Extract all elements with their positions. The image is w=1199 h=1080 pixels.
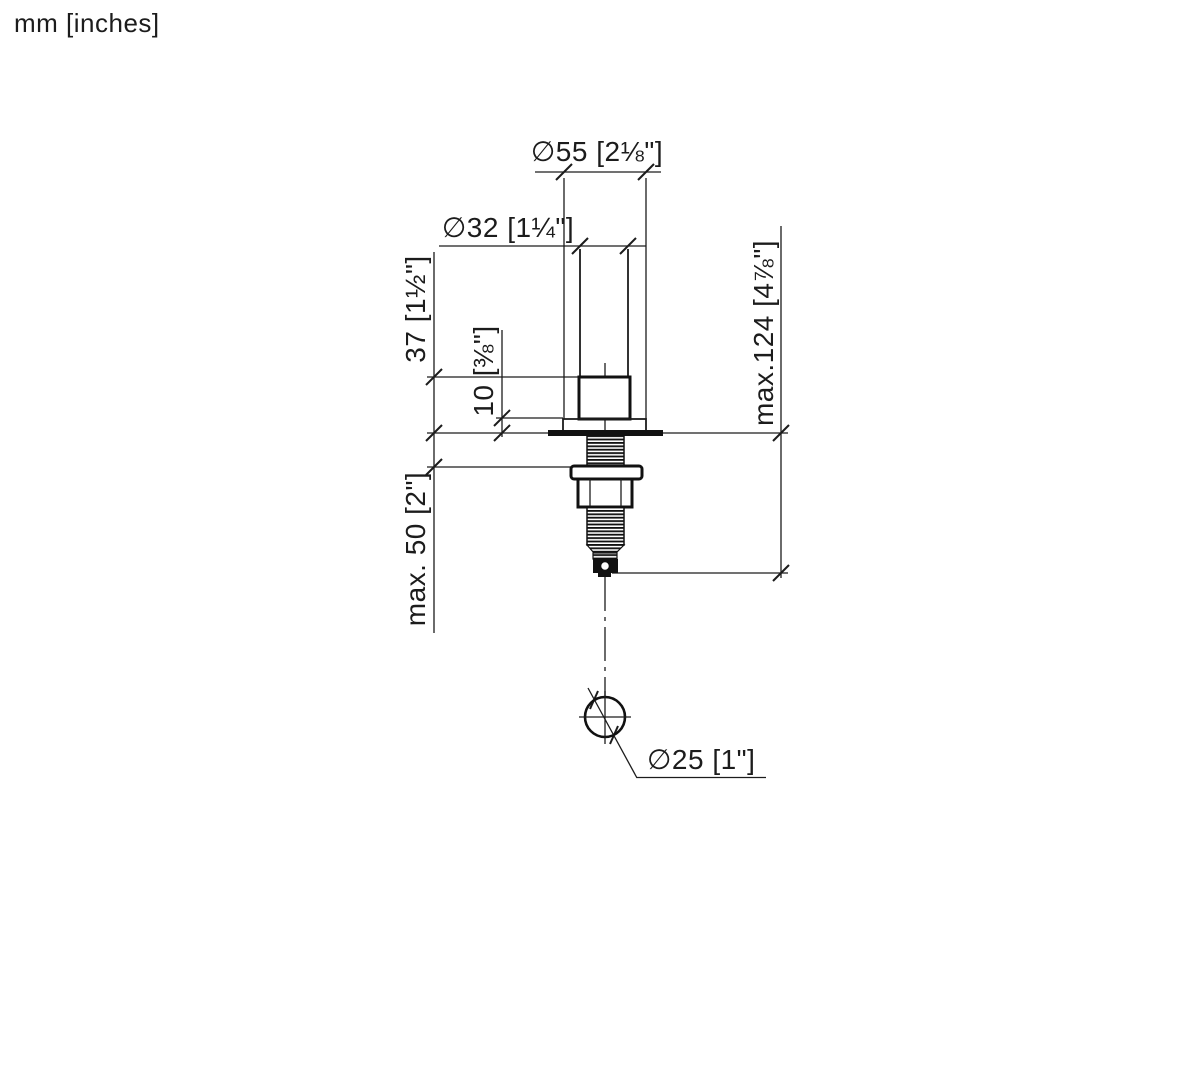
shaft-stub xyxy=(593,553,617,559)
hex-nut xyxy=(578,479,632,507)
hole-leader-line xyxy=(588,688,637,778)
dim-flange-height: 10 [⅜"] xyxy=(468,325,499,416)
dim-handle-diameter: ∅32 [1¼"] xyxy=(442,212,574,243)
dim-body-height: 37 [1½"] xyxy=(400,255,431,362)
washer xyxy=(571,466,642,479)
dim-max-below-deck: max.124 [4⅞"] xyxy=(748,240,779,426)
threaded-shaft-lower xyxy=(587,507,624,545)
drawing-page: mm [inches] xyxy=(0,0,1199,1080)
threaded-shaft-upper xyxy=(587,436,624,466)
rod-tip-nub xyxy=(598,573,611,577)
pull-rod-hole xyxy=(601,562,610,571)
mounting-deck xyxy=(548,430,663,436)
units-label: mm [inches] xyxy=(14,8,160,38)
technical-drawing: mm [inches] xyxy=(0,0,1199,1080)
dim-hole-diameter: ∅25 [1"] xyxy=(647,744,755,775)
dim-max-deck-thickness: max. 50 [2"] xyxy=(400,472,431,626)
shaft-taper xyxy=(587,545,624,553)
dim-flange-diameter: ∅55 [2⅛"] xyxy=(531,136,663,167)
valve-body xyxy=(579,377,630,419)
